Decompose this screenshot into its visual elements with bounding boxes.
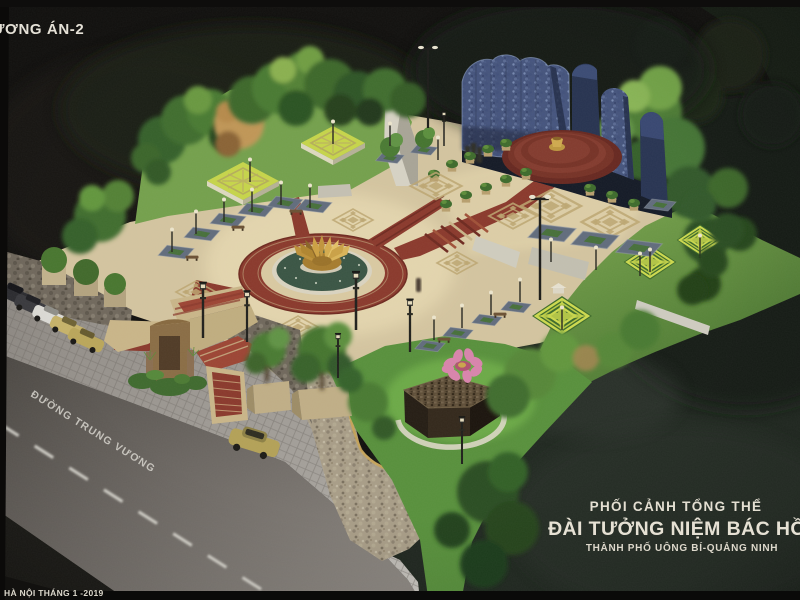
svg-text:THÀNH PHỐ UÔNG BÍ-QUẢNG NINH: THÀNH PHỐ UÔNG BÍ-QUẢNG NINH [586,540,778,554]
svg-text:HÀ NỘI THÁNG 1 -2019: HÀ NỘI THÁNG 1 -2019 [4,587,104,598]
svg-text:ƯƠNG ÁN-2: ƯƠNG ÁN-2 [0,21,84,38]
svg-text:ĐÀI TƯỞNG NIỆM BÁC HỒ: ĐÀI TƯỞNG NIỆM BÁC HỒ [548,516,800,540]
svg-text:PHỐI CẢNH TỔNG THỂ: PHỐI CẢNH TỔNG THỂ [590,499,763,514]
